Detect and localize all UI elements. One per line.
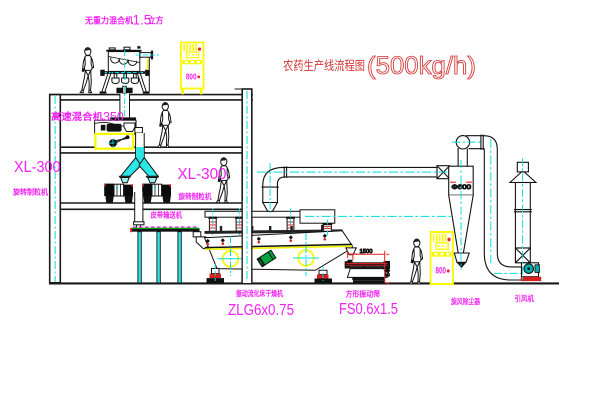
svg-text:振动流化床干燥机: 振动流化床干燥机 bbox=[236, 289, 283, 298]
svg-text:ZLG6x0.75: ZLG6x0.75 bbox=[228, 302, 294, 319]
svg-text:皮带输送机: 皮带输送机 bbox=[150, 209, 183, 219]
svg-text:方形振动筛: 方形振动筛 bbox=[346, 290, 381, 299]
svg-text:引风机: 引风机 bbox=[515, 294, 535, 303]
svg-text:FS0.6x1.5: FS0.6x1.5 bbox=[339, 301, 398, 318]
svg-text:350: 350 bbox=[103, 110, 124, 124]
svg-text:无重力混合机: 无重力混合机 bbox=[84, 15, 133, 26]
svg-text:XL-300: XL-300 bbox=[14, 159, 61, 176]
svg-text:(500kg/h): (500kg/h) bbox=[367, 52, 476, 80]
svg-text:1500: 1500 bbox=[360, 249, 373, 255]
svg-text:XL-300: XL-300 bbox=[178, 166, 227, 183]
svg-text:旋转制粒机: 旋转制粒机 bbox=[12, 187, 48, 197]
svg-text:高速混合机: 高速混合机 bbox=[51, 111, 103, 123]
svg-text:立方: 立方 bbox=[148, 15, 164, 26]
svg-text:旋风除尘器: 旋风除尘器 bbox=[450, 297, 480, 306]
svg-text:旋转制粒机: 旋转制粒机 bbox=[178, 191, 212, 201]
svg-text:540: 540 bbox=[385, 267, 391, 277]
svg-text:农药生产线流程图: 农药生产线流程图 bbox=[283, 58, 365, 73]
